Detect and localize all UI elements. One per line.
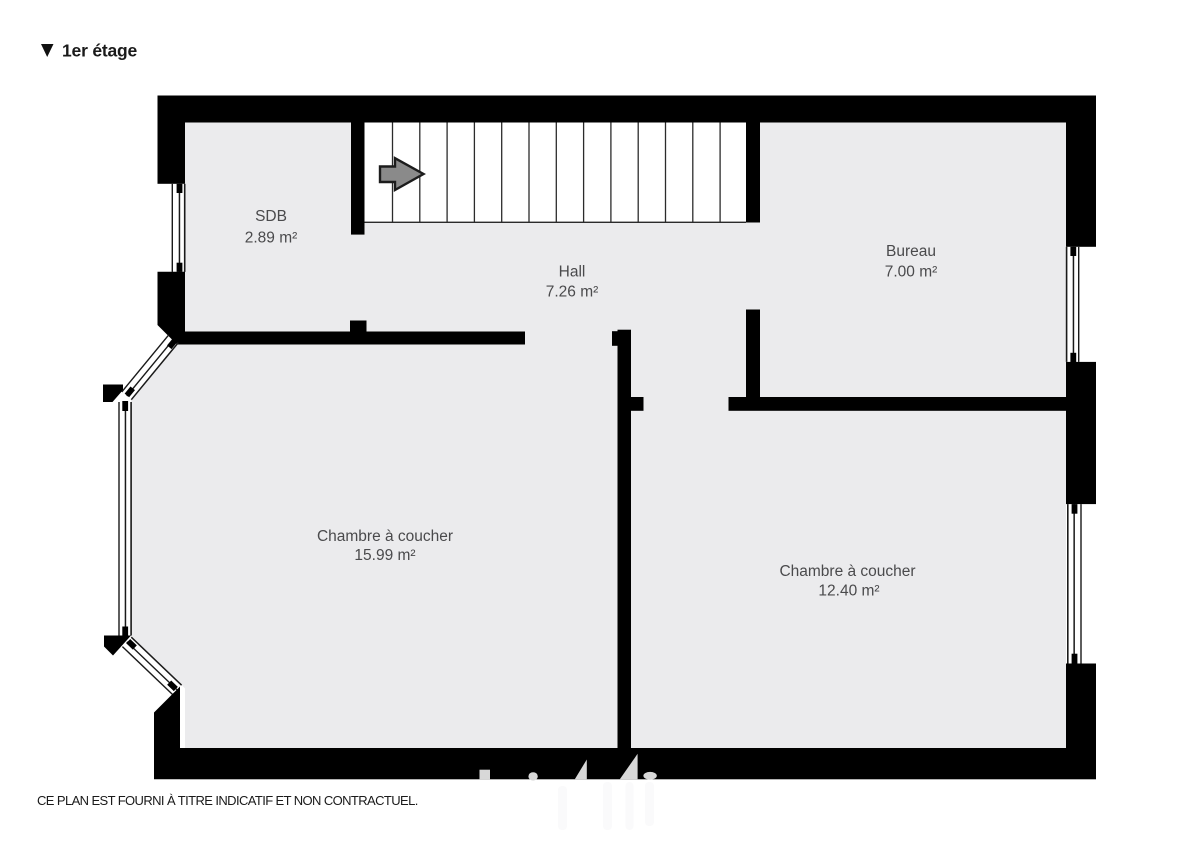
svg-text:Chambre à coucher: Chambre à coucher xyxy=(779,563,915,580)
svg-text:Bureau: Bureau xyxy=(886,243,936,260)
svg-text:7.26 m²: 7.26 m² xyxy=(546,283,599,300)
svg-text:SDB: SDB xyxy=(255,208,287,225)
svg-text:Chambre à coucher: Chambre à coucher xyxy=(317,528,453,545)
svg-text:1er étage: 1er étage xyxy=(62,41,138,61)
svg-text:Hall: Hall xyxy=(559,263,586,280)
svg-text:CE PLAN EST FOURNI À TITRE IND: CE PLAN EST FOURNI À TITRE INDICATIF ET … xyxy=(37,793,418,808)
svg-text:12.40 m²: 12.40 m² xyxy=(818,582,879,599)
svg-text:15.99 m²: 15.99 m² xyxy=(354,547,415,564)
svg-text:2.89 m²: 2.89 m² xyxy=(245,230,298,247)
svg-text:7.00 m²: 7.00 m² xyxy=(885,263,938,280)
